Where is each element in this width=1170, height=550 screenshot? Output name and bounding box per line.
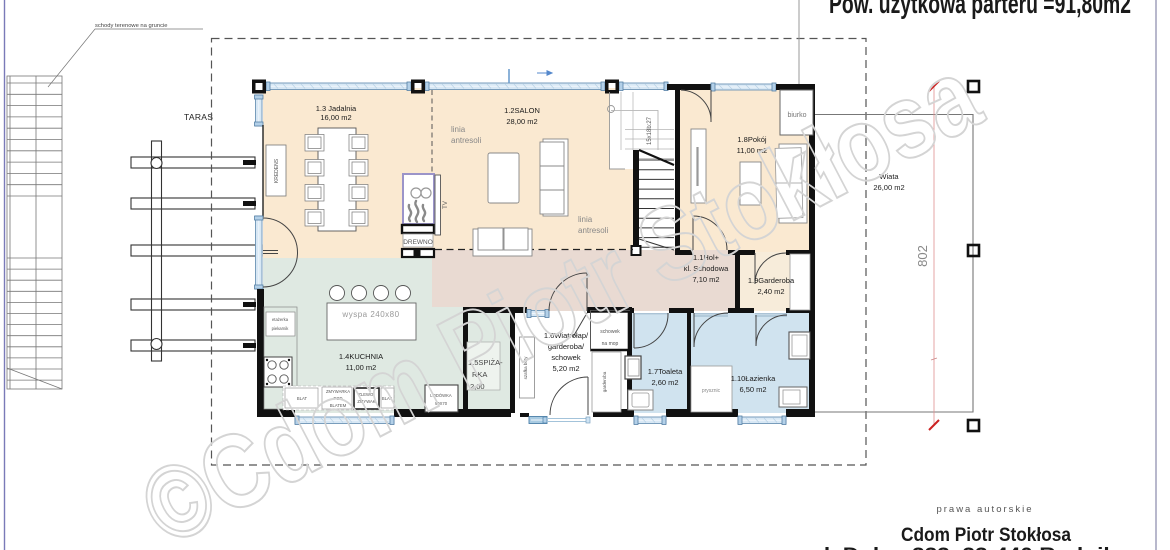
svg-text:802: 802 [915, 245, 930, 267]
svg-text:prawa autorskie: prawa autorskie [936, 504, 1033, 515]
svg-text:1.7Toaleta: 1.7Toaleta [648, 367, 683, 376]
svg-text:schody terenowe na gruncie: schody terenowe na gruncie [95, 23, 168, 29]
svg-text:prysznic: prysznic [702, 388, 721, 394]
svg-text:1.9Garderoba: 1.9Garderoba [748, 276, 795, 285]
svg-text:etażerka: etażerka [272, 317, 289, 322]
svg-text:TV: TV [443, 201, 449, 209]
svg-text:28,00 m2: 28,00 m2 [506, 117, 537, 126]
svg-text:piekarnik: piekarnik [272, 326, 290, 331]
svg-text:2,40 m2: 2,40 m2 [757, 287, 784, 296]
svg-text:TARAS: TARAS [184, 112, 213, 122]
svg-text:garderoba: garderoba [602, 371, 607, 392]
svg-text:1.2SALON: 1.2SALON [504, 106, 540, 115]
svg-text:wyspa 240x80: wyspa 240x80 [341, 310, 399, 319]
svg-text:linia: linia [451, 125, 466, 134]
svg-text:2,60 m2: 2,60 m2 [651, 378, 678, 387]
svg-text:Pow. użytkowa parteru =91,80m2: Pow. użytkowa parteru =91,80m2 [829, 0, 1131, 19]
svg-text:KREDENS: KREDENS [274, 158, 280, 183]
svg-text:1.10Łazienka: 1.10Łazienka [731, 374, 776, 383]
svg-text:antresoli: antresoli [451, 136, 481, 145]
svg-text:Cdom Piotr Stokłosa: Cdom Piotr Stokłosa [901, 525, 1071, 546]
svg-text:15x18b:27: 15x18b:27 [647, 116, 653, 145]
svg-text:16,00 m2: 16,00 m2 [320, 113, 351, 122]
svg-text:DREWNO: DREWNO [403, 239, 433, 246]
svg-text:1.3 Jadalnia: 1.3 Jadalnia [316, 104, 357, 113]
svg-text:6,50 m2: 6,50 m2 [739, 385, 766, 394]
svg-text:ul. Dolna 333, 33-440 Rudnik: ul. Dolna 333, 33-440 Rudnik [810, 545, 1117, 550]
